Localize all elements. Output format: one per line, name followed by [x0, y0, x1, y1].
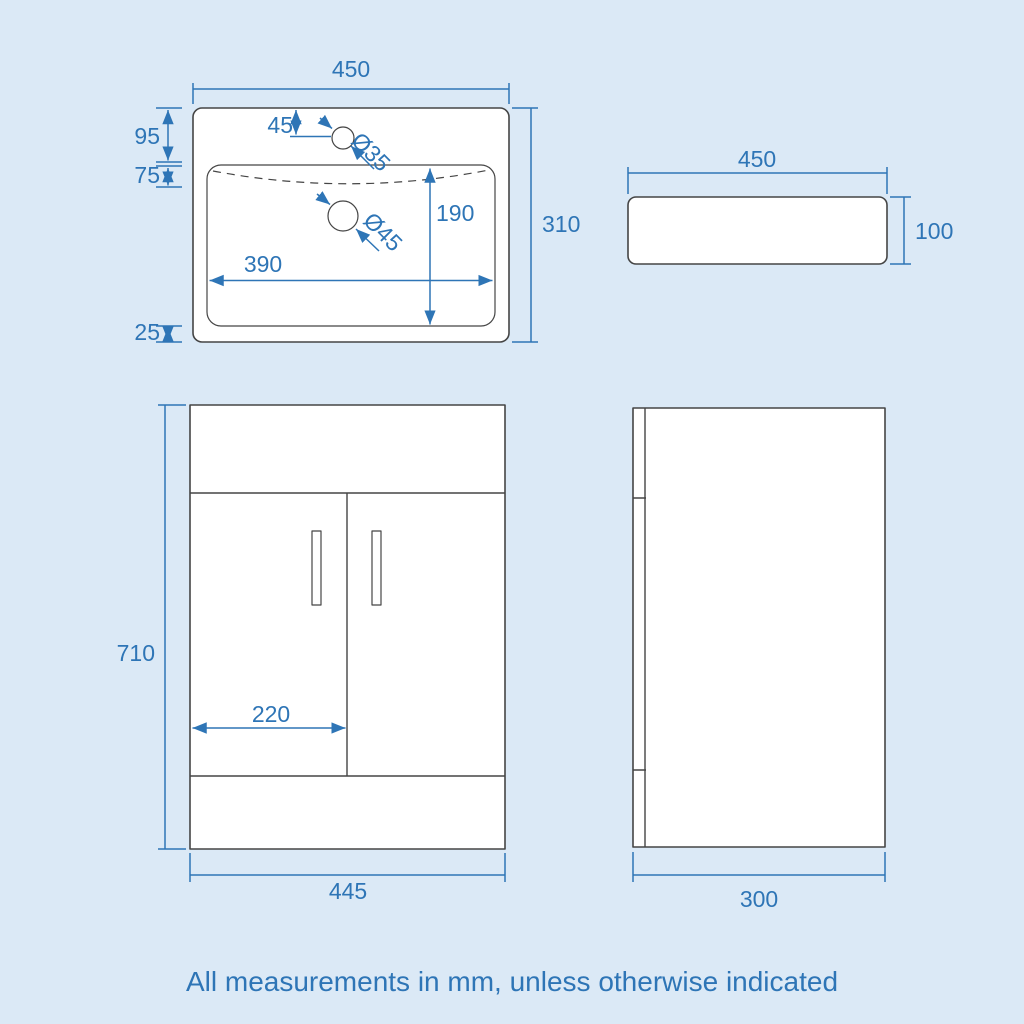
dim-basin-depth-label: 310 — [542, 211, 580, 237]
basin-side-outline — [628, 197, 887, 264]
dim-left-stack: 95 75 25 — [134, 108, 182, 345]
dim-front-ledge-label: 25 — [134, 319, 160, 345]
measurements-note: All measurements in mm, unless otherwise… — [186, 966, 838, 997]
dim-basin-side-height: 100 — [890, 197, 953, 264]
dim-vanity-height: 710 — [117, 405, 186, 849]
dim-basin-side-width-label: 450 — [738, 146, 776, 172]
dim-vanity-width: 445 — [190, 853, 505, 904]
dim-vanity-depth-label: 300 — [740, 886, 778, 912]
vanity-side-outline — [633, 408, 885, 847]
dim-vanity-depth: 300 — [633, 852, 885, 912]
dim-basin-width-label: 450 — [332, 56, 370, 82]
dim-rear-ledge-label: 95 — [134, 123, 160, 149]
dim-basin-depth: 310 — [512, 108, 580, 342]
dim-basin-width: 450 — [193, 56, 509, 104]
basin-side-view: 450 100 — [628, 146, 953, 264]
left-door-handle — [312, 531, 321, 605]
dim-tap-offset-label: 45 — [267, 112, 293, 138]
dimension-drawing: 450 310 95 75 25 45 Ø35 Ø4 — [0, 0, 1024, 1024]
dim-vanity-height-label: 710 — [117, 640, 155, 666]
dim-basin-side-height-label: 100 — [915, 218, 953, 244]
basin-bowl-outline — [207, 165, 495, 326]
waste-hole — [328, 201, 358, 231]
dim-bowl-width-label: 390 — [244, 251, 282, 277]
vanity-side-view: 300 — [633, 408, 885, 912]
technical-drawing-page: 450 310 95 75 25 45 Ø35 Ø4 — [0, 0, 1024, 1024]
dim-overflow-gap-label: 75 — [134, 162, 160, 188]
dim-basin-side-width: 450 — [628, 146, 887, 194]
dim-door-width-label: 220 — [252, 701, 290, 727]
dim-bowl-depth-label: 190 — [436, 200, 474, 226]
basin-top-view: 450 310 95 75 25 45 Ø35 Ø4 — [134, 56, 580, 345]
dim-vanity-width-label: 445 — [329, 878, 367, 904]
right-door-handle — [372, 531, 381, 605]
vanity-front-view: 710 220 445 — [117, 405, 505, 904]
